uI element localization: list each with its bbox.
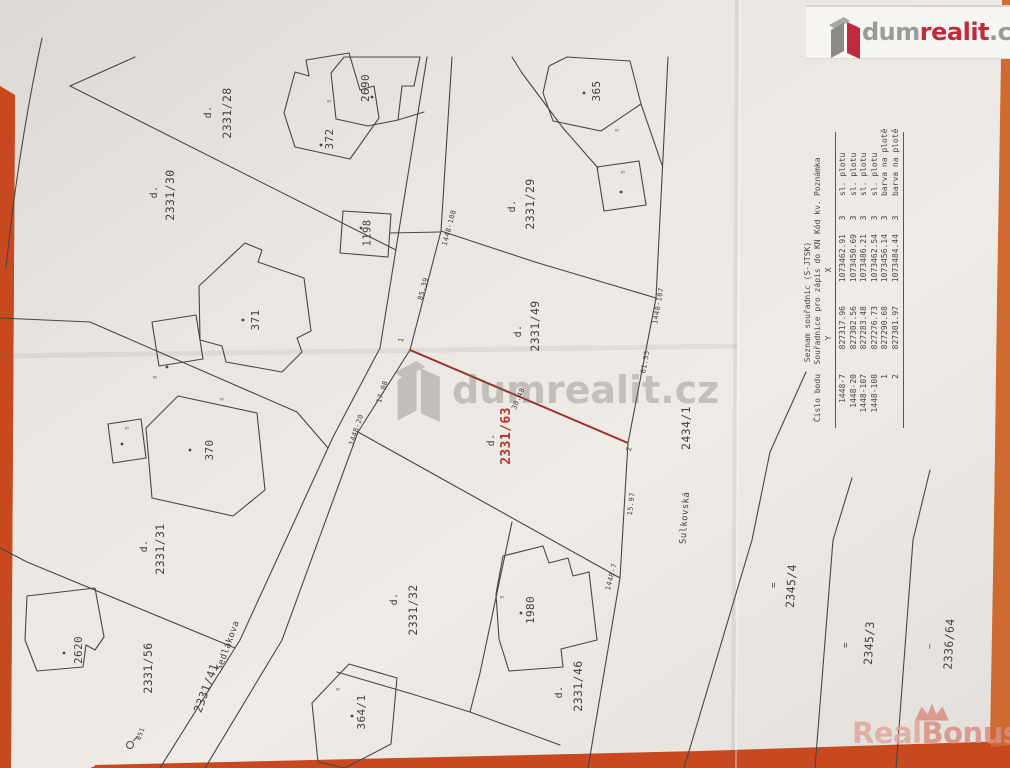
column-header: X [824, 234, 835, 306]
table-cell: 1073486.21 [859, 234, 870, 306]
table-row: 1827290.681073456.143barva na plotě [880, 132, 891, 428]
logo-text-realit: realit [920, 18, 989, 46]
table-cell: sl. plotu [849, 132, 860, 202]
building-dot [63, 652, 66, 655]
dumrealit-cube-icon [828, 15, 862, 59]
table-cell: 1448-7 [838, 370, 849, 428]
table-cell: barva na plotě [891, 132, 902, 202]
table-rule [835, 132, 836, 428]
table-cell: 827302.56 [849, 306, 860, 370]
building-dot [620, 191, 623, 194]
dumrealit-logo: dumrealit.cz [806, 5, 1010, 59]
realbonus-watermark: RealBonus.cz [852, 716, 1010, 750]
photo-of-cadastral-map: { "branding": { "logo": { "icon": "dumre… [0, 0, 1010, 768]
dumrealit-watermark: dumrealit.cz [392, 358, 719, 422]
building-dot [583, 92, 586, 95]
table-cell: 1073462.54 [870, 234, 881, 306]
building-dot [360, 227, 363, 230]
column-header: Poznámka [813, 132, 824, 202]
building-dot [371, 96, 374, 99]
logo-text-dum: dum [862, 18, 920, 46]
logo-text-cz: .cz [989, 18, 1010, 46]
table-cell: 827301.97 [891, 306, 902, 370]
watermark-text: dumrealit.cz [452, 368, 719, 412]
table-rule [903, 132, 904, 428]
table-cell: 3 [859, 202, 870, 234]
building-dot [351, 715, 354, 718]
table-cell: 3 [880, 202, 891, 234]
column-header: Kód kv. [813, 202, 824, 234]
table-cell: 1073450.69 [849, 234, 860, 306]
dumrealit-cube-icon [392, 358, 444, 422]
building-dot [189, 449, 192, 452]
table-row: 1448-108827276.731073462.543sl. plotu [870, 132, 881, 428]
crown-icon [914, 702, 950, 722]
table-title: Seznam souřadnic (S-JTSK) [802, 234, 813, 370]
table-cell: 827317.96 [838, 306, 849, 370]
table-cell: 1448-20 [849, 370, 860, 428]
table-cell: 827276.73 [870, 306, 881, 370]
table-cell: 3 [870, 202, 881, 234]
table-row: 1448-7827317.961073462.913sl. plotu [838, 132, 849, 428]
table-cell: 1073456.14 [880, 234, 891, 306]
table-cell: 2 [891, 370, 902, 428]
table-cell: 1448-108 [870, 370, 881, 428]
table-header-row: Číslo bodu Souřadnice pro zápis do KN Kó… [813, 132, 824, 428]
table-row: 1448-20827302.561073450.693sl. plotu [849, 132, 860, 428]
logo-text: dumrealit.cz [862, 18, 1010, 46]
building-dot [121, 443, 124, 446]
table-cell: 3 [849, 202, 860, 234]
table-cell: 1073462.91 [838, 234, 849, 306]
building-dot [320, 144, 323, 147]
table-subheader-row: Y X [824, 132, 835, 428]
table-cell: sl. plotu [870, 132, 881, 202]
column-header: Y [824, 306, 835, 370]
table-cell: 827283.48 [859, 306, 870, 370]
table-cell: 1448-107 [859, 370, 870, 428]
building-dot [242, 319, 245, 322]
building-dot [166, 366, 169, 369]
table-cell: sl. plotu [859, 132, 870, 202]
coordinate-table: Seznam souřadnic (S-JTSK) Číslo bodu Sou… [802, 132, 904, 428]
table-cell: 3 [838, 202, 849, 234]
table-cell: 827290.68 [880, 306, 891, 370]
table-cell: sl. plotu [838, 132, 849, 202]
table-cell: 1073484.44 [891, 234, 902, 306]
building-dot [520, 612, 523, 615]
table-row: 1448-107827283.481073486.213sl. plotu [859, 132, 870, 428]
table-row: 2827301.971073484.443barva na plotě [891, 132, 902, 428]
table-cell: 3 [891, 202, 902, 234]
table-cell: 1 [880, 370, 891, 428]
table-body: 1448-7827317.961073462.913sl. plotu1448-… [838, 132, 901, 428]
table-subtitle: Souřadnice pro zápis do KN [813, 234, 824, 370]
realbonus-text-real: Real [852, 716, 922, 750]
table-cell: barva na plotě [880, 132, 891, 202]
column-header: Číslo bodu [813, 370, 824, 428]
